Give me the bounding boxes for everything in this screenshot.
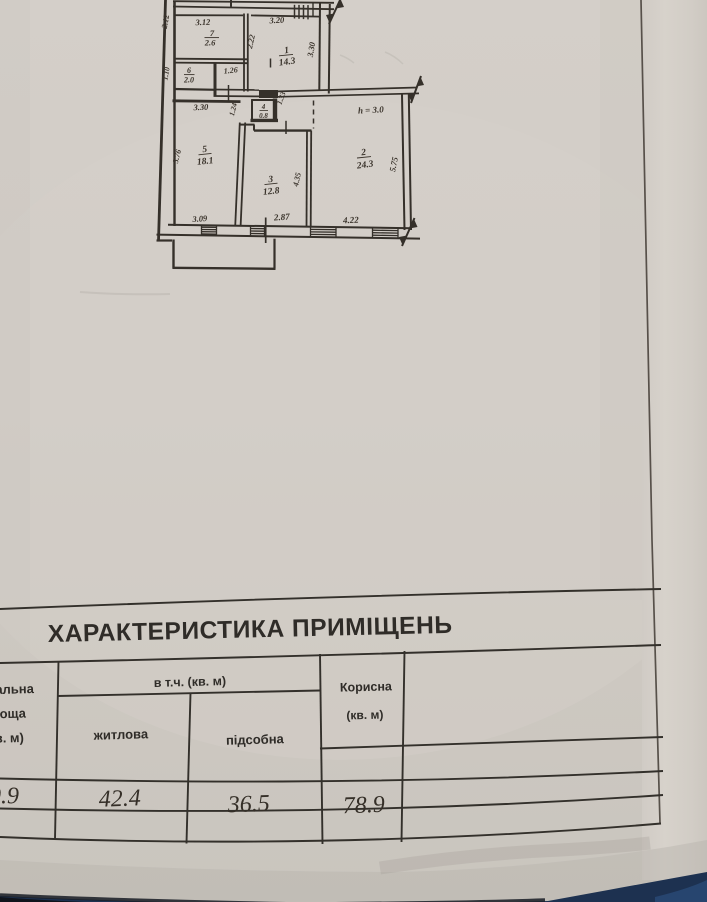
svg-text:3.30: 3.30 — [192, 102, 209, 113]
svg-text:3.09: 3.09 — [191, 213, 208, 224]
svg-text:2.6: 2.6 — [204, 38, 216, 48]
svg-text:42.4: 42.4 — [98, 785, 141, 812]
svg-text:0.9: 0.9 — [0, 784, 19, 810]
svg-text:h = 3.0: h = 3.0 — [358, 104, 385, 115]
svg-text:3.12: 3.12 — [194, 17, 211, 28]
svg-text:житлова: житлова — [92, 726, 149, 742]
svg-text:2.0: 2.0 — [183, 76, 194, 85]
svg-text:альна: альна — [0, 681, 35, 697]
svg-text:оща: оща — [0, 705, 27, 721]
svg-text:36.5: 36.5 — [226, 791, 270, 818]
svg-text:0.8: 0.8 — [259, 112, 268, 120]
svg-text:в. м): в. м) — [0, 730, 24, 746]
svg-text:12.8: 12.8 — [263, 186, 281, 198]
svg-text:2.87: 2.87 — [273, 211, 291, 222]
svg-text:Корисна: Корисна — [340, 679, 393, 694]
svg-text:4: 4 — [261, 103, 266, 111]
svg-text:6: 6 — [187, 66, 191, 75]
svg-text:підсобна: підсобна — [226, 731, 285, 748]
svg-text:4.22: 4.22 — [342, 215, 360, 226]
svg-text:3.20: 3.20 — [268, 15, 285, 26]
svg-text:1.26: 1.26 — [223, 65, 238, 75]
svg-text:18.1: 18.1 — [197, 156, 215, 168]
svg-text:в т.ч. (кв. м): в т.ч. (кв. м) — [154, 674, 227, 690]
svg-text:78.9: 78.9 — [342, 792, 385, 819]
svg-text:(кв. м): (кв. м) — [346, 708, 383, 723]
